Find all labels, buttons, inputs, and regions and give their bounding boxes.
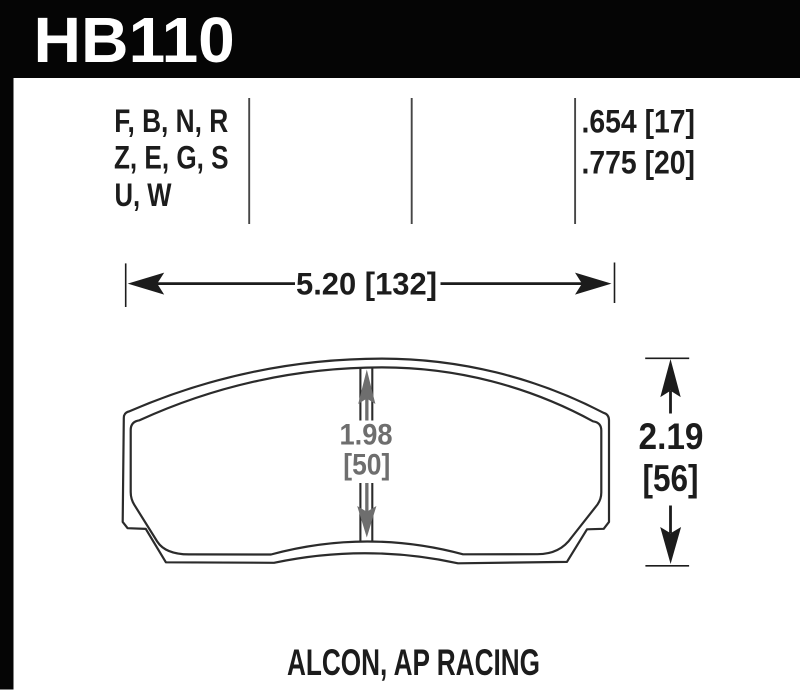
svg-text:U, W: U, W xyxy=(115,177,172,213)
svg-text:ALCON, AP RACING: ALCON, AP RACING xyxy=(287,642,540,683)
svg-text:[56]: [56] xyxy=(643,458,699,499)
svg-text:1.98: 1.98 xyxy=(340,419,393,451)
svg-text:.775 [20]: .775 [20] xyxy=(582,144,696,181)
svg-text:5.20 [132]: 5.20 [132] xyxy=(296,266,437,301)
svg-text:Z, E, G, S: Z, E, G, S xyxy=(114,140,229,176)
svg-text:2.19: 2.19 xyxy=(639,416,704,457)
svg-text:HB110: HB110 xyxy=(34,4,235,76)
svg-text:.654 [17]: .654 [17] xyxy=(582,102,696,139)
svg-text:[50]: [50] xyxy=(343,449,390,481)
svg-text:F, B, N, R: F, B, N, R xyxy=(114,103,228,139)
